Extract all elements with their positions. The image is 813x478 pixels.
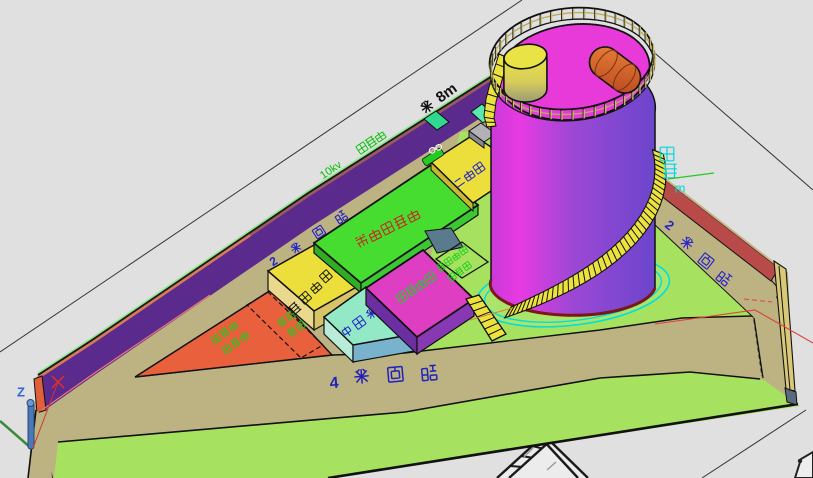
svg-text:Z: Z — [17, 384, 25, 399]
svg-text:m: m — [675, 180, 686, 195]
svg-text:4: 4 — [329, 375, 339, 393]
